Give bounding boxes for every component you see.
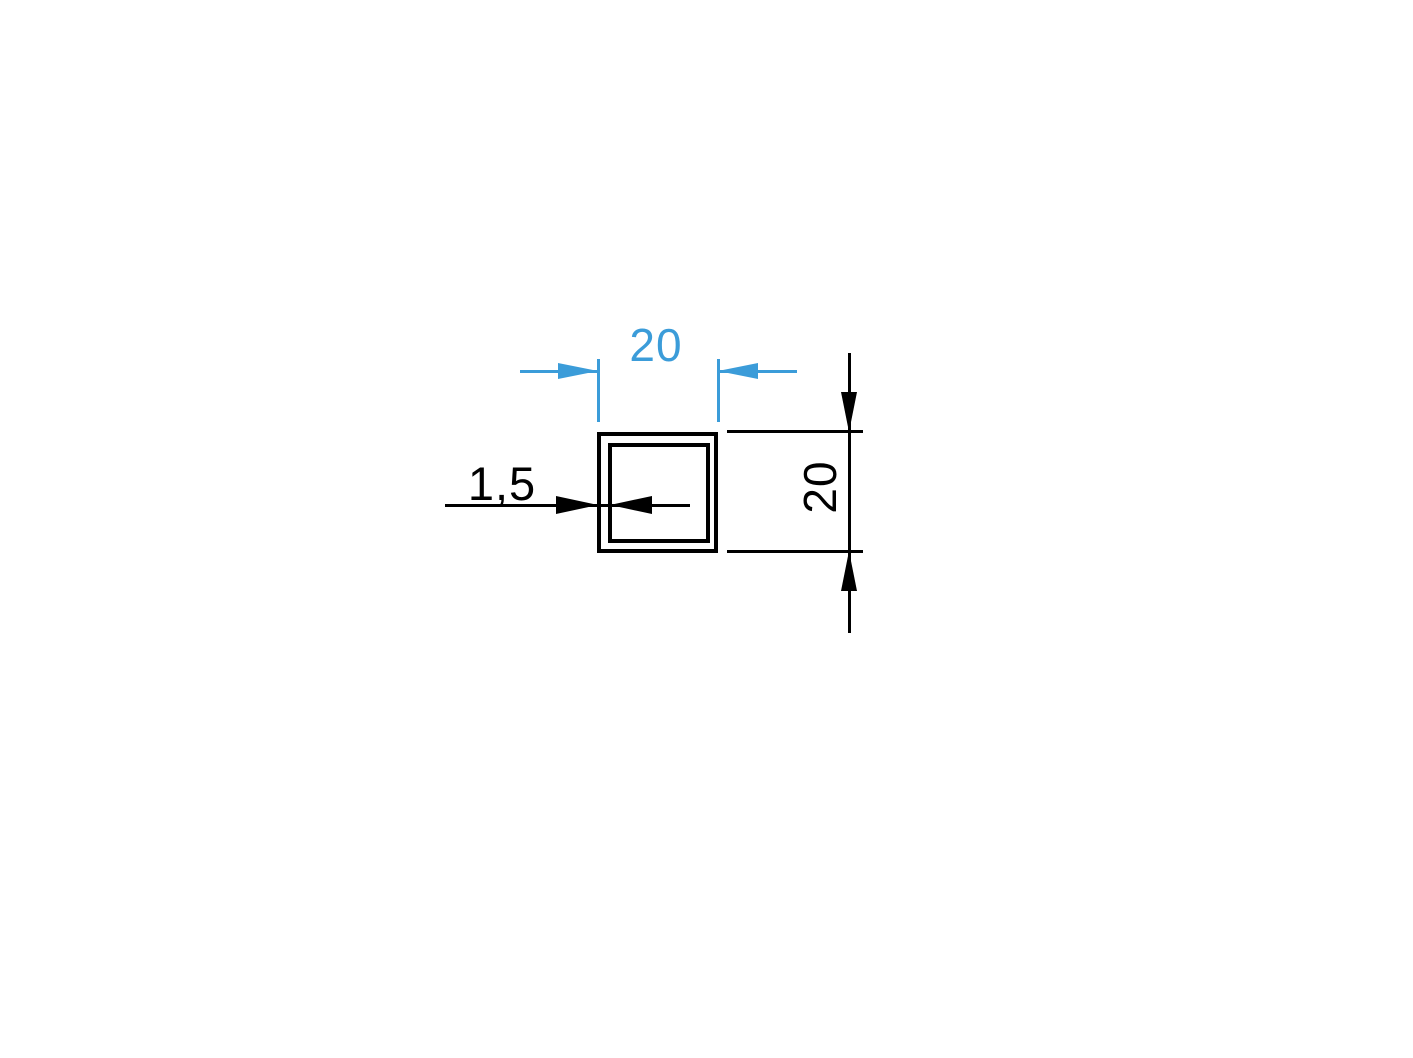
- width-extension-line-right: [717, 359, 720, 422]
- drawing-canvas: 20 1,5 20: [0, 0, 1413, 1058]
- height-dimension-label: 20: [780, 447, 860, 527]
- width-dimension-label: 20: [606, 322, 706, 368]
- height-extension-line-bottom: [727, 550, 863, 553]
- height-arrowhead-bottom: [841, 551, 857, 591]
- wall-thickness-label: 1,5: [452, 460, 552, 507]
- wall-arrowhead-outer: [556, 496, 598, 514]
- height-extension-line-top: [727, 430, 863, 433]
- height-arrowhead-top: [841, 392, 857, 432]
- width-extension-line-left: [597, 359, 600, 422]
- width-arrowhead-left: [558, 363, 598, 379]
- profile-inner-square: [608, 443, 710, 543]
- width-arrowhead-right: [718, 363, 758, 379]
- wall-arrowhead-inner: [610, 496, 652, 514]
